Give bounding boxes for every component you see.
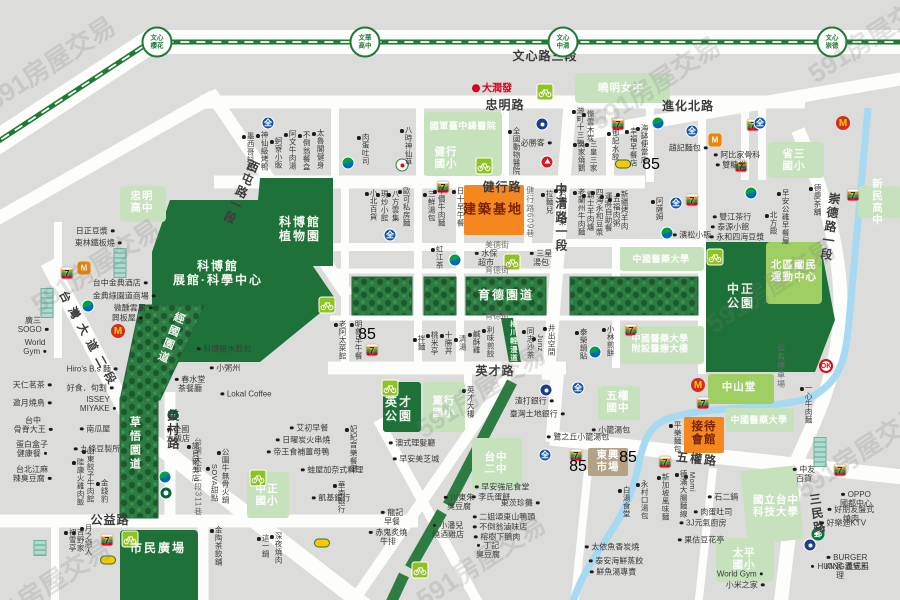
mcdonalds-icon: M [691, 378, 705, 392]
seven-eleven-icon: 7 [686, 194, 699, 207]
familymart-icon [652, 117, 665, 130]
mrt-station[interactable]: 文心 櫻花 [142, 27, 173, 58]
mos-burger-icon: M [78, 262, 91, 275]
85c-icon: 85 [569, 458, 587, 476]
subway-icon [100, 556, 116, 565]
starbucks-icon [167, 409, 180, 422]
landmark-building-icon [114, 248, 127, 278]
block-reception-hall[interactable] [684, 417, 724, 453]
bike-station-icon [250, 470, 267, 487]
bike-station-icon [382, 380, 399, 397]
seven-eleven-icon: 7 [847, 189, 860, 202]
seven-eleven-icon: 7 [659, 456, 672, 469]
map-base-layer [0, 0, 900, 600]
seven-eleven-icon: 7 [625, 324, 638, 337]
mrt-station[interactable]: 文心 中清 [548, 27, 579, 58]
greenway-yude-2 [424, 277, 456, 315]
greenway-yude-3 [466, 277, 546, 315]
seven-eleven-icon: 7 [612, 118, 625, 131]
mcdonalds-icon: M [111, 324, 125, 338]
okmart-icon: OK [819, 359, 833, 373]
pxmart-icon: 全 [384, 229, 397, 242]
familymart-icon [449, 254, 462, 267]
landmark-building-icon [41, 288, 54, 318]
bike-station-icon [537, 84, 554, 101]
bank-icon [536, 118, 549, 131]
block-duxing-es [423, 382, 465, 432]
block-nutc [740, 465, 803, 544]
mcdonalds-icon: M [836, 116, 850, 130]
familymart-icon [82, 300, 95, 313]
block-cmu-south [726, 408, 794, 432]
mrt-station[interactable]: 文心 崇德 [817, 27, 848, 58]
greenway-caowu [120, 398, 158, 518]
85c-icon: 85 [619, 449, 637, 467]
85c-icon: 85 [642, 156, 660, 174]
bank-icon [540, 384, 553, 397]
mos-burger-icon: M [709, 134, 722, 147]
bank-icon [804, 539, 817, 552]
seven-eleven-icon: 7 [437, 181, 450, 194]
block-xinmin-hs [858, 186, 900, 218]
bike-station-icon [122, 531, 139, 548]
block-cmu [620, 247, 704, 271]
greenway-yude-4 [570, 277, 698, 315]
block-sports-center [766, 242, 822, 304]
subway-icon [314, 539, 330, 548]
starbucks-icon [160, 487, 173, 500]
seven-eleven-icon: 7 [735, 160, 748, 173]
bike-station-icon [412, 562, 429, 579]
bike-station-icon [707, 249, 724, 266]
familymart-icon [589, 346, 602, 359]
subway-icon [615, 160, 631, 169]
pxmart-icon: 全 [686, 125, 699, 138]
seven-eleven-icon: 7 [101, 534, 114, 547]
seven-eleven-icon: 7 [366, 344, 379, 357]
block-xiaoming-girls-hs [575, 73, 670, 103]
map-canvas[interactable]: 文心路三段忠明路進化北路健行路英才路公益路五權路西屯路一段中清路一段崇德路一段美… [0, 0, 900, 600]
bike-station-icon [504, 254, 521, 271]
landmark-building-icon [814, 437, 827, 467]
pizza-hut-icon [541, 156, 554, 169]
block-construction-site [464, 185, 524, 235]
familymart-icon [745, 187, 758, 200]
familymart-icon [159, 471, 172, 484]
sushiro-icon [396, 159, 409, 172]
block-wuquan-jhs [598, 386, 640, 420]
pxmart-icon: 全 [262, 117, 275, 130]
block-taiping-es [716, 538, 774, 582]
greenway-yude-1 [352, 277, 412, 315]
mrt-station[interactable]: 文華 高中 [350, 27, 381, 58]
pxmart-icon: 全 [572, 382, 585, 395]
block-taichung-2nd-hs [472, 438, 522, 490]
85c-icon: 85 [358, 326, 376, 344]
block-zhongming-hs [120, 186, 166, 222]
seven-eleven-icon: 7 [61, 267, 74, 280]
seven-eleven-icon: 7 [834, 464, 847, 477]
pxmart-icon: 全 [539, 449, 552, 462]
familymart-icon [661, 227, 674, 240]
landmark-building-icon [34, 540, 47, 556]
seven-eleven-icon: 7 [697, 397, 710, 410]
familymart-icon [342, 157, 355, 170]
block-zhongshan-hall [708, 374, 774, 404]
pxmart-icon: 全 [670, 197, 683, 210]
block-shengsan-es [768, 142, 824, 178]
bike-station-icon [319, 297, 336, 314]
bike-station-icon [476, 158, 493, 175]
pxmart-icon: 全 [754, 117, 767, 130]
